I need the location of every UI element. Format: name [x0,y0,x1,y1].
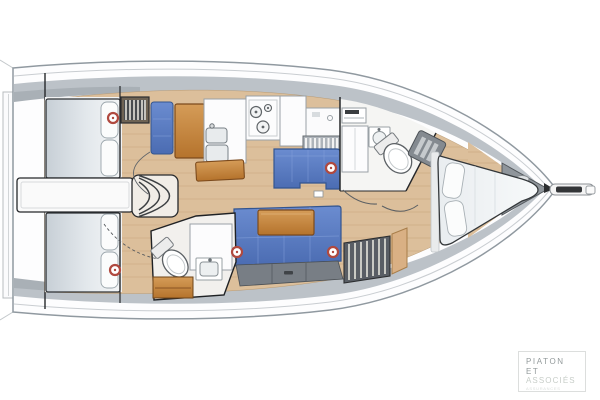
logo-box: PIATON ET ASSOCIÉS ASSURANCES [518,351,586,392]
worktop-item [312,112,320,117]
sink-basin [200,262,218,276]
faucet [378,128,381,131]
galley-locker [196,160,245,181]
logo-line3: ASSOCIÉS [526,376,585,386]
hanger-bars [349,239,385,281]
chart-table [175,104,205,158]
logo-tagline: ASSURANCES [526,386,585,392]
galley-sink-basin [206,145,228,162]
bowsprit-tip [586,186,595,194]
locker-handle [284,271,293,275]
companionway [17,175,178,217]
porthole-ring [108,113,118,123]
seat-bench [392,228,407,274]
bow-gear [544,183,595,195]
floor-latch [314,191,323,197]
porthole-ring [326,163,336,173]
logo-line1: PIATON [526,357,585,367]
pillow [101,214,118,250]
galley-cabinet [280,96,306,146]
bowsprit-track [556,187,582,193]
porthole-ring [328,247,338,257]
floor-plan-canvas: PIATON ET ASSOCIÉS ASSURANCES [0,0,600,400]
faucet [208,258,212,262]
stern-quarter-line [0,312,13,320]
stern-quarter-line [0,60,13,68]
galley-sink-basin [206,128,227,143]
galley-worktop [306,108,340,136]
engine-box [17,178,133,212]
aft-cabin-port [45,212,122,303]
floor-plan-svg [0,0,600,400]
porthole-ring [110,265,120,275]
aft-cabin-starboard [45,86,122,178]
logo-line2: ET [526,367,585,377]
instrument-display [345,110,359,114]
faucet [210,124,214,128]
nav-seat [151,102,173,154]
pillow [101,140,118,176]
porthole-ring [232,247,242,257]
